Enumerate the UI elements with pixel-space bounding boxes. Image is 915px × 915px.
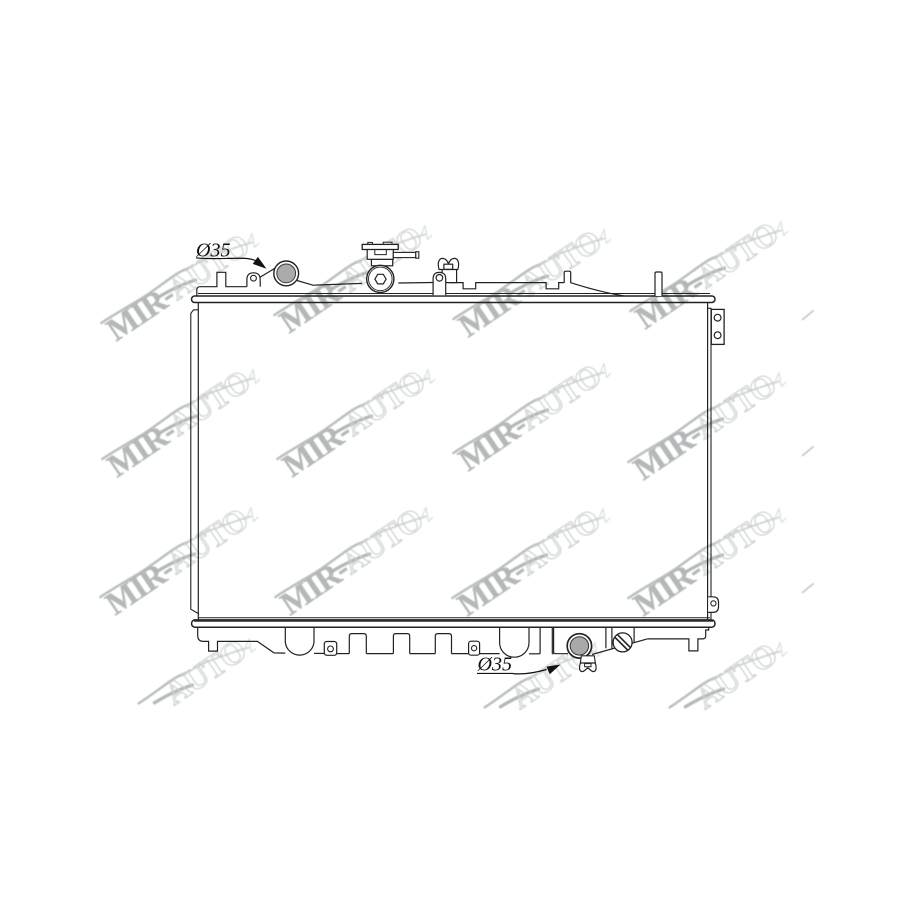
svg-text:Ø35: Ø35 [477, 654, 512, 676]
